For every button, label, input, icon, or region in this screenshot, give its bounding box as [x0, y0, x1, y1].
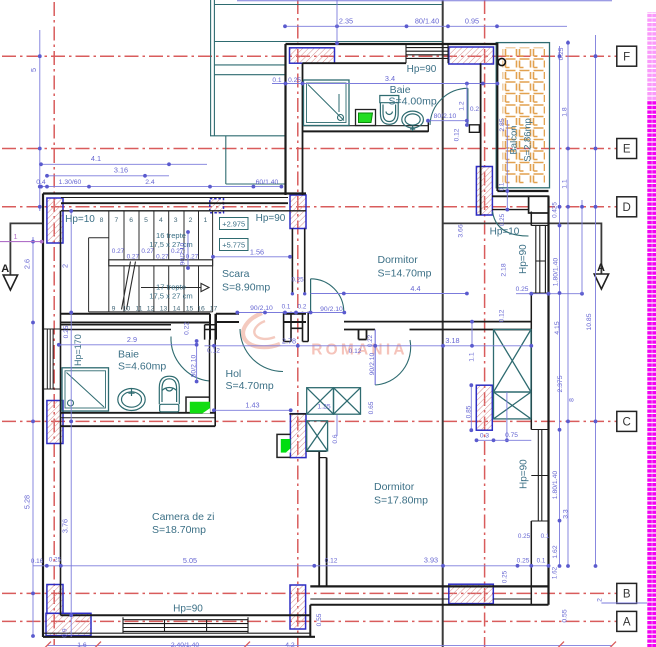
svg-text:1.6: 1.6: [77, 642, 87, 647]
svg-text:S=2.86mp: S=2.86mp: [523, 118, 534, 162]
svg-text:3.18: 3.18: [445, 336, 459, 345]
svg-text:2: 2: [597, 598, 604, 602]
svg-text:2.40/1.40: 2.40/1.40: [171, 642, 200, 647]
svg-text:0.25: 0.25: [288, 77, 301, 84]
svg-text:17: 17: [210, 306, 218, 313]
svg-text:2: 2: [61, 264, 70, 268]
svg-text:Baie: Baie: [390, 84, 411, 96]
svg-text:Hp=170: Hp=170: [73, 334, 83, 366]
svg-text:0.25: 0.25: [518, 533, 531, 540]
svg-text:0.1: 0.1: [541, 533, 550, 540]
svg-text:1.25: 1.25: [317, 404, 330, 411]
svg-text:0.22: 0.22: [367, 334, 374, 347]
svg-text:0.25: 0.25: [558, 47, 565, 60]
svg-text:12: 12: [147, 306, 155, 313]
svg-text:0.1: 0.1: [537, 557, 546, 564]
svg-text:6: 6: [129, 217, 133, 224]
svg-text:Hp=90: Hp=90: [519, 459, 530, 489]
svg-text:0.12: 0.12: [207, 348, 220, 355]
svg-text:3.93: 3.93: [424, 555, 438, 564]
svg-text:1.56: 1.56: [250, 247, 264, 256]
svg-text:S=14.70mp: S=14.70mp: [378, 268, 432, 280]
svg-text:Scara: Scara: [222, 268, 250, 280]
svg-text:0.27: 0.27: [112, 248, 125, 255]
svg-text:0.12: 0.12: [454, 128, 461, 141]
svg-text:S=4.00mp: S=4.00mp: [389, 96, 437, 108]
svg-text:Hol: Hol: [226, 368, 242, 380]
svg-text:10.85: 10.85: [586, 313, 593, 330]
svg-text:2.6: 2.6: [23, 259, 32, 269]
svg-text:5: 5: [29, 68, 38, 72]
svg-text:90/2.10: 90/2.10: [320, 306, 343, 313]
svg-text:2.375: 2.375: [557, 375, 564, 392]
svg-text:1.80/1.40: 1.80/1.40: [552, 471, 559, 500]
svg-text:A: A: [597, 262, 605, 274]
svg-text:0.27: 0.27: [127, 254, 140, 261]
svg-text:5.05: 5.05: [183, 556, 197, 565]
svg-text:0.25: 0.25: [49, 557, 62, 564]
svg-text:0.4: 0.4: [36, 179, 46, 186]
svg-text:1.62: 1.62: [552, 566, 559, 579]
svg-text:2.4: 2.4: [145, 179, 155, 186]
svg-text:0.25: 0.25: [517, 557, 530, 564]
svg-text:1.2: 1.2: [459, 101, 466, 111]
svg-text:0.25: 0.25: [63, 325, 70, 338]
svg-text:0.12: 0.12: [325, 557, 338, 564]
svg-text:2.35: 2.35: [339, 17, 353, 26]
svg-text:Camera de zi: Camera de zi: [152, 511, 214, 523]
svg-text:S=17.80mp: S=17.80mp: [374, 495, 428, 507]
svg-text:1: 1: [204, 217, 208, 224]
svg-text:0.16: 0.16: [31, 558, 44, 565]
svg-text:0.25: 0.25: [516, 286, 529, 293]
svg-text:0.3: 0.3: [480, 432, 489, 439]
svg-text:2.78: 2.78: [282, 336, 296, 345]
svg-text:Hp=90: Hp=90: [518, 244, 529, 274]
svg-text:3: 3: [174, 217, 178, 224]
svg-text:0.1: 0.1: [282, 304, 291, 311]
svg-text:0.22: 0.22: [184, 322, 191, 335]
svg-text:0.95: 0.95: [465, 17, 479, 26]
svg-text:60/1.40: 60/1.40: [256, 179, 279, 186]
svg-text:4.15: 4.15: [554, 321, 561, 334]
svg-text:0.65: 0.65: [368, 401, 375, 414]
svg-text:13: 13: [160, 306, 168, 313]
svg-text:16 trepte: 16 trepte: [156, 231, 186, 240]
svg-text:Hp=90: Hp=90: [173, 604, 203, 615]
svg-text:2.9: 2.9: [127, 335, 137, 344]
svg-text:1.62: 1.62: [552, 545, 559, 558]
svg-text:Hp=10: Hp=10: [65, 214, 95, 225]
svg-text:3.4: 3.4: [385, 74, 395, 83]
svg-text:0.6: 0.6: [332, 434, 339, 443]
svg-text:Dormitor: Dormitor: [374, 481, 415, 493]
svg-text:17,5 x 27 cm: 17,5 x 27 cm: [149, 291, 192, 300]
svg-text:0.25: 0.25: [499, 213, 506, 226]
svg-text:80/1.40: 80/1.40: [415, 17, 439, 26]
svg-text:0.25: 0.25: [291, 277, 304, 284]
svg-text:1.43: 1.43: [245, 401, 259, 410]
svg-text:1.30/60: 1.30/60: [59, 179, 82, 186]
svg-text:0.12: 0.12: [349, 348, 362, 355]
svg-text:8: 8: [100, 217, 104, 224]
svg-text:3.3: 3.3: [562, 509, 569, 519]
svg-text:0.27: 0.27: [141, 248, 154, 255]
svg-text:0.75: 0.75: [505, 432, 518, 439]
svg-text:2.18: 2.18: [500, 263, 507, 276]
svg-text:7: 7: [115, 217, 119, 224]
svg-text:Baie: Baie: [118, 349, 139, 361]
svg-text:2.85: 2.85: [499, 118, 506, 131]
svg-text:1.80/1.40: 1.80/1.40: [552, 258, 559, 287]
svg-text:5: 5: [144, 217, 148, 224]
svg-text:0.9: 0.9: [62, 628, 69, 637]
svg-text:0.25: 0.25: [502, 570, 509, 583]
svg-text:F: F: [623, 51, 630, 63]
svg-text:10: 10: [123, 306, 131, 313]
svg-text:C: C: [623, 417, 631, 429]
svg-text:3.16: 3.16: [114, 166, 128, 175]
svg-text:0.1: 0.1: [499, 182, 506, 191]
svg-text:8: 8: [569, 398, 576, 402]
svg-text:3.76: 3.76: [61, 519, 70, 533]
svg-text:S=8.90mp: S=8.90mp: [222, 282, 270, 294]
svg-text:4.2: 4.2: [285, 642, 295, 647]
svg-text:Dormitor: Dormitor: [378, 254, 419, 266]
svg-text:Hp=90: Hp=90: [256, 213, 286, 224]
svg-text:1.8: 1.8: [561, 107, 568, 117]
svg-text:S=18.70mp: S=18.70mp: [152, 524, 206, 536]
svg-text:90/2.10: 90/2.10: [180, 242, 187, 265]
svg-text:B: B: [623, 589, 631, 601]
svg-text:1: 1: [13, 232, 17, 241]
svg-text:E: E: [623, 144, 631, 156]
svg-text:15: 15: [186, 306, 194, 313]
svg-text:A: A: [1, 263, 9, 275]
svg-text:0.12: 0.12: [499, 309, 506, 322]
svg-text:4.1: 4.1: [91, 154, 101, 163]
svg-text:0.55: 0.55: [562, 609, 569, 622]
svg-text:4.4: 4.4: [410, 284, 420, 293]
svg-text:9: 9: [112, 306, 116, 313]
svg-text:S=4.70mp: S=4.70mp: [226, 380, 274, 392]
svg-text:90/2.10: 90/2.10: [369, 352, 376, 375]
svg-text:0.2: 0.2: [470, 106, 479, 113]
svg-text:0.425: 0.425: [551, 202, 558, 218]
svg-text:Hp=10: Hp=10: [490, 226, 520, 237]
svg-text:0.1: 0.1: [272, 77, 281, 84]
svg-text:80/2.10: 80/2.10: [434, 113, 457, 120]
svg-text:90/2.10: 90/2.10: [250, 305, 273, 312]
svg-text:A: A: [623, 617, 631, 629]
svg-text:4: 4: [159, 217, 163, 224]
svg-text:5.28: 5.28: [23, 495, 32, 509]
svg-text:+5.775: +5.775: [222, 240, 245, 249]
svg-text:+2.975: +2.975: [222, 219, 245, 228]
svg-text:17 trepte: 17 trepte: [156, 283, 186, 292]
svg-text:1.1: 1.1: [469, 352, 476, 362]
svg-text:14: 14: [173, 306, 181, 313]
svg-text:16: 16: [197, 306, 205, 313]
svg-text:11: 11: [135, 306, 142, 313]
svg-text:3.66: 3.66: [457, 224, 464, 237]
svg-text:Balcon: Balcon: [509, 125, 520, 154]
svg-text:0.27: 0.27: [156, 254, 169, 261]
svg-text:0.2: 0.2: [298, 304, 307, 311]
svg-text:0.55: 0.55: [316, 613, 323, 626]
svg-text:Hp=90: Hp=90: [407, 64, 437, 75]
svg-text:D: D: [623, 202, 631, 214]
svg-text:S=4.60mp: S=4.60mp: [118, 361, 166, 373]
svg-text:2: 2: [189, 217, 193, 224]
svg-text:1.1: 1.1: [561, 179, 568, 189]
